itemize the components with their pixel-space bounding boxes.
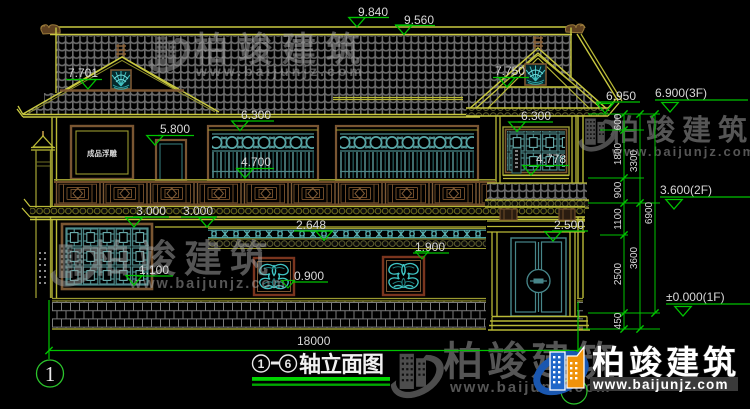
svg-text:1800: 1800	[613, 142, 624, 165]
svg-text:柏竣建筑: 柏竣建筑	[92, 239, 276, 281]
svg-text:6.900(3F): 6.900(3F)	[655, 86, 707, 100]
svg-text:3.600(2F): 3.600(2F)	[660, 183, 712, 197]
svg-text:4.778: 4.778	[536, 152, 566, 166]
svg-text:7.701: 7.701	[68, 66, 98, 80]
svg-text:成品浮雕: 成品浮雕	[87, 148, 117, 158]
svg-text:450: 450	[613, 312, 624, 329]
svg-text:0.900: 0.900	[294, 269, 324, 283]
svg-text:5.800: 5.800	[160, 122, 190, 136]
svg-text:18000: 18000	[297, 334, 331, 348]
svg-text:4.700: 4.700	[241, 155, 271, 169]
svg-text:6.300: 6.300	[241, 108, 271, 122]
svg-text:2.648: 2.648	[296, 218, 326, 232]
svg-text:7.750: 7.750	[495, 64, 525, 78]
svg-text:6900: 6900	[644, 201, 655, 224]
svg-text:6.300: 6.300	[521, 109, 551, 123]
svg-text:±0.000(1F): ±0.000(1F)	[666, 290, 725, 304]
svg-text:6: 6	[285, 357, 292, 371]
svg-text:2.500: 2.500	[554, 218, 584, 232]
svg-text:600: 600	[613, 113, 624, 130]
svg-text:3.000: 3.000	[136, 204, 166, 218]
svg-text:2500: 2500	[613, 262, 624, 285]
svg-text:1100: 1100	[613, 208, 624, 230]
svg-text:6.950: 6.950	[606, 89, 636, 103]
svg-text:1: 1	[258, 357, 265, 371]
svg-text:900: 900	[613, 181, 624, 198]
svg-text:3600: 3600	[629, 246, 640, 269]
svg-text:1: 1	[45, 362, 56, 386]
svg-text:www.baijunjz.com: www.baijunjz.com	[129, 276, 287, 292]
svg-text:轴立面图: 轴立面图	[299, 352, 383, 377]
svg-text:www.baijunjz.com: www.baijunjz.com	[592, 377, 729, 392]
svg-text:www.baijunjz.com: www.baijunjz.com	[195, 63, 365, 79]
svg-text:柏竣建筑: 柏竣建筑	[592, 344, 740, 381]
svg-text:3300: 3300	[629, 149, 640, 172]
svg-text:3.000: 3.000	[183, 204, 213, 218]
